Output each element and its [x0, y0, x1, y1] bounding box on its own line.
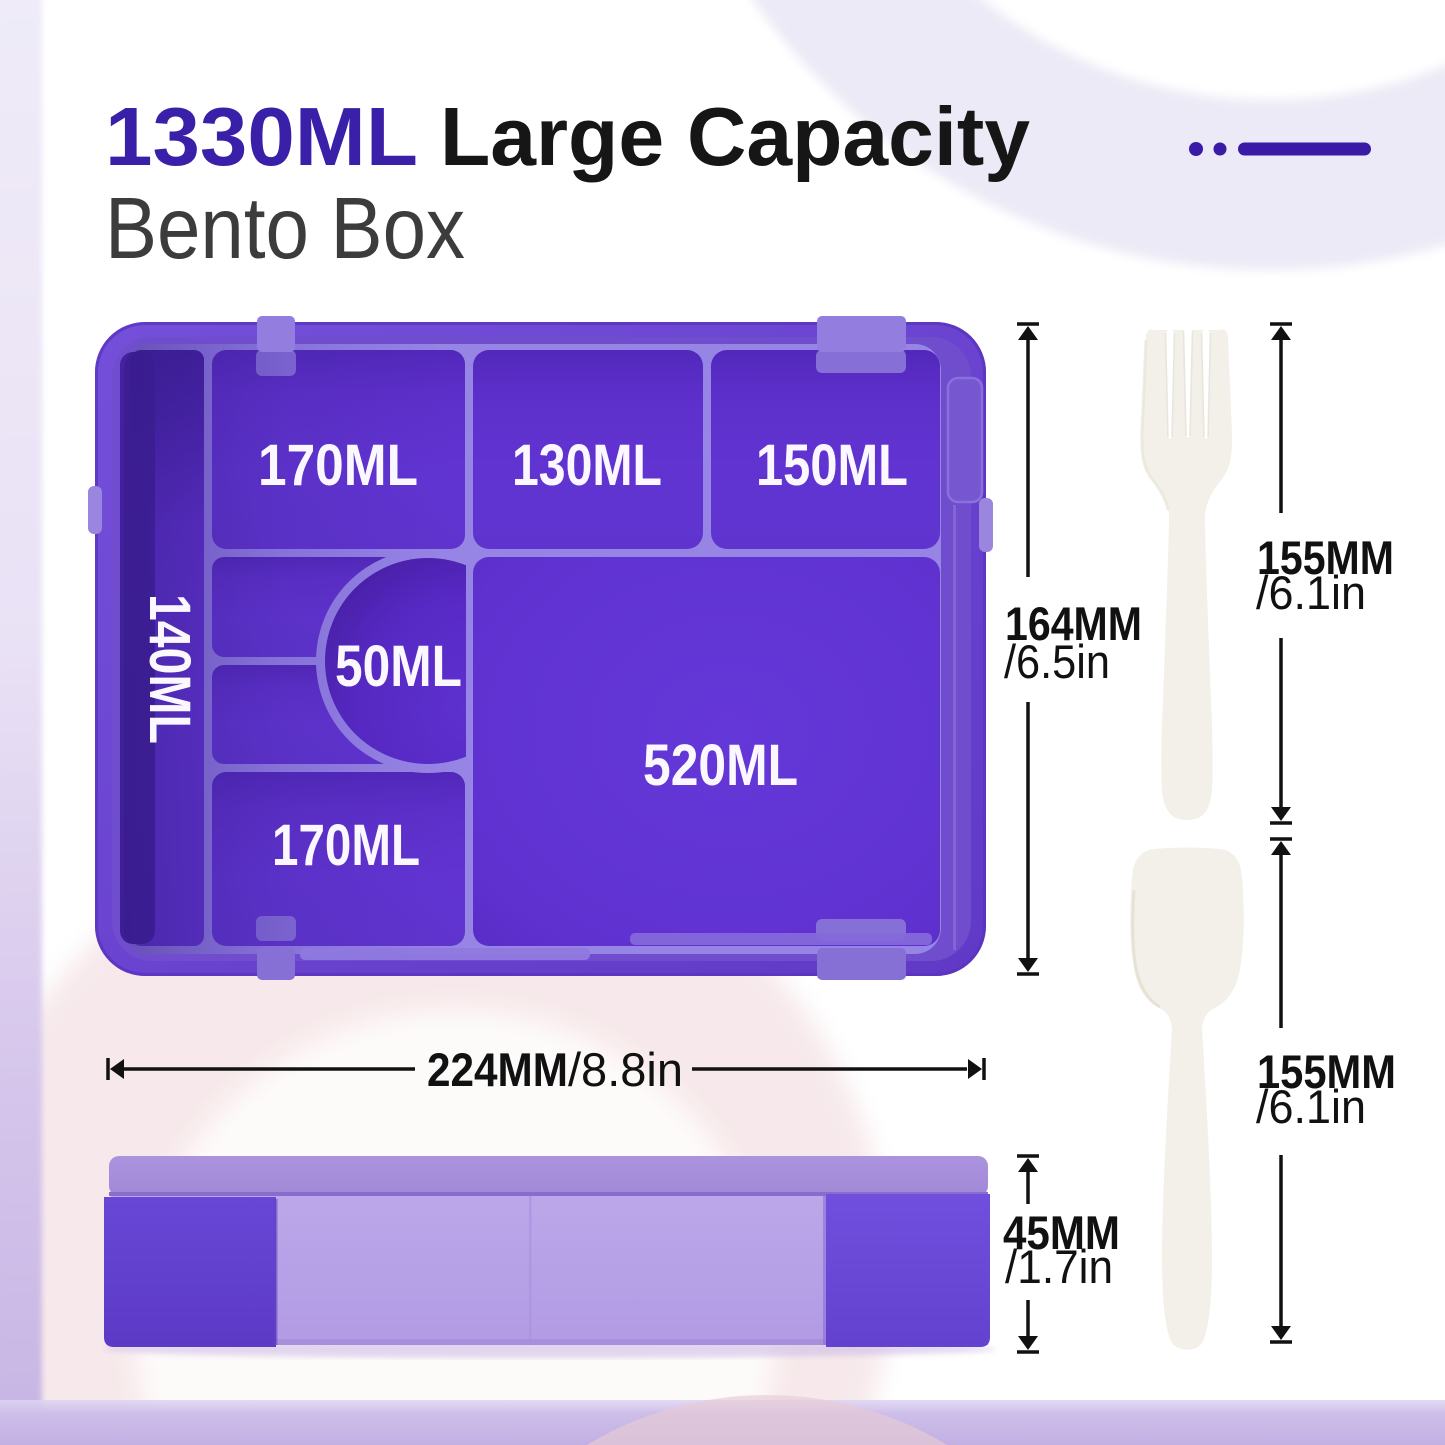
svg-text:1330ML: 1330ML: [105, 90, 418, 183]
svg-text:50ML: 50ML: [335, 634, 462, 699]
svg-text:/8.8in: /8.8in: [568, 1043, 683, 1096]
svg-text:/6.1in: /6.1in: [1256, 1080, 1366, 1133]
svg-text:520ML: 520ML: [643, 733, 798, 798]
svg-text:/6.5in: /6.5in: [1004, 635, 1110, 688]
svg-text:170ML: 170ML: [258, 433, 418, 498]
svg-text:140ML: 140ML: [137, 594, 202, 744]
svg-text:/6.1in: /6.1in: [1256, 566, 1366, 619]
svg-text:224MM: 224MM: [427, 1043, 568, 1096]
svg-text:Bento Box: Bento Box: [105, 180, 465, 277]
svg-text:130ML: 130ML: [512, 433, 662, 498]
svg-text:150ML: 150ML: [756, 433, 908, 498]
svg-text:/1.7in: /1.7in: [1005, 1240, 1113, 1293]
svg-text:170ML: 170ML: [272, 813, 420, 878]
svg-text:Large Capacity: Large Capacity: [440, 90, 1030, 183]
